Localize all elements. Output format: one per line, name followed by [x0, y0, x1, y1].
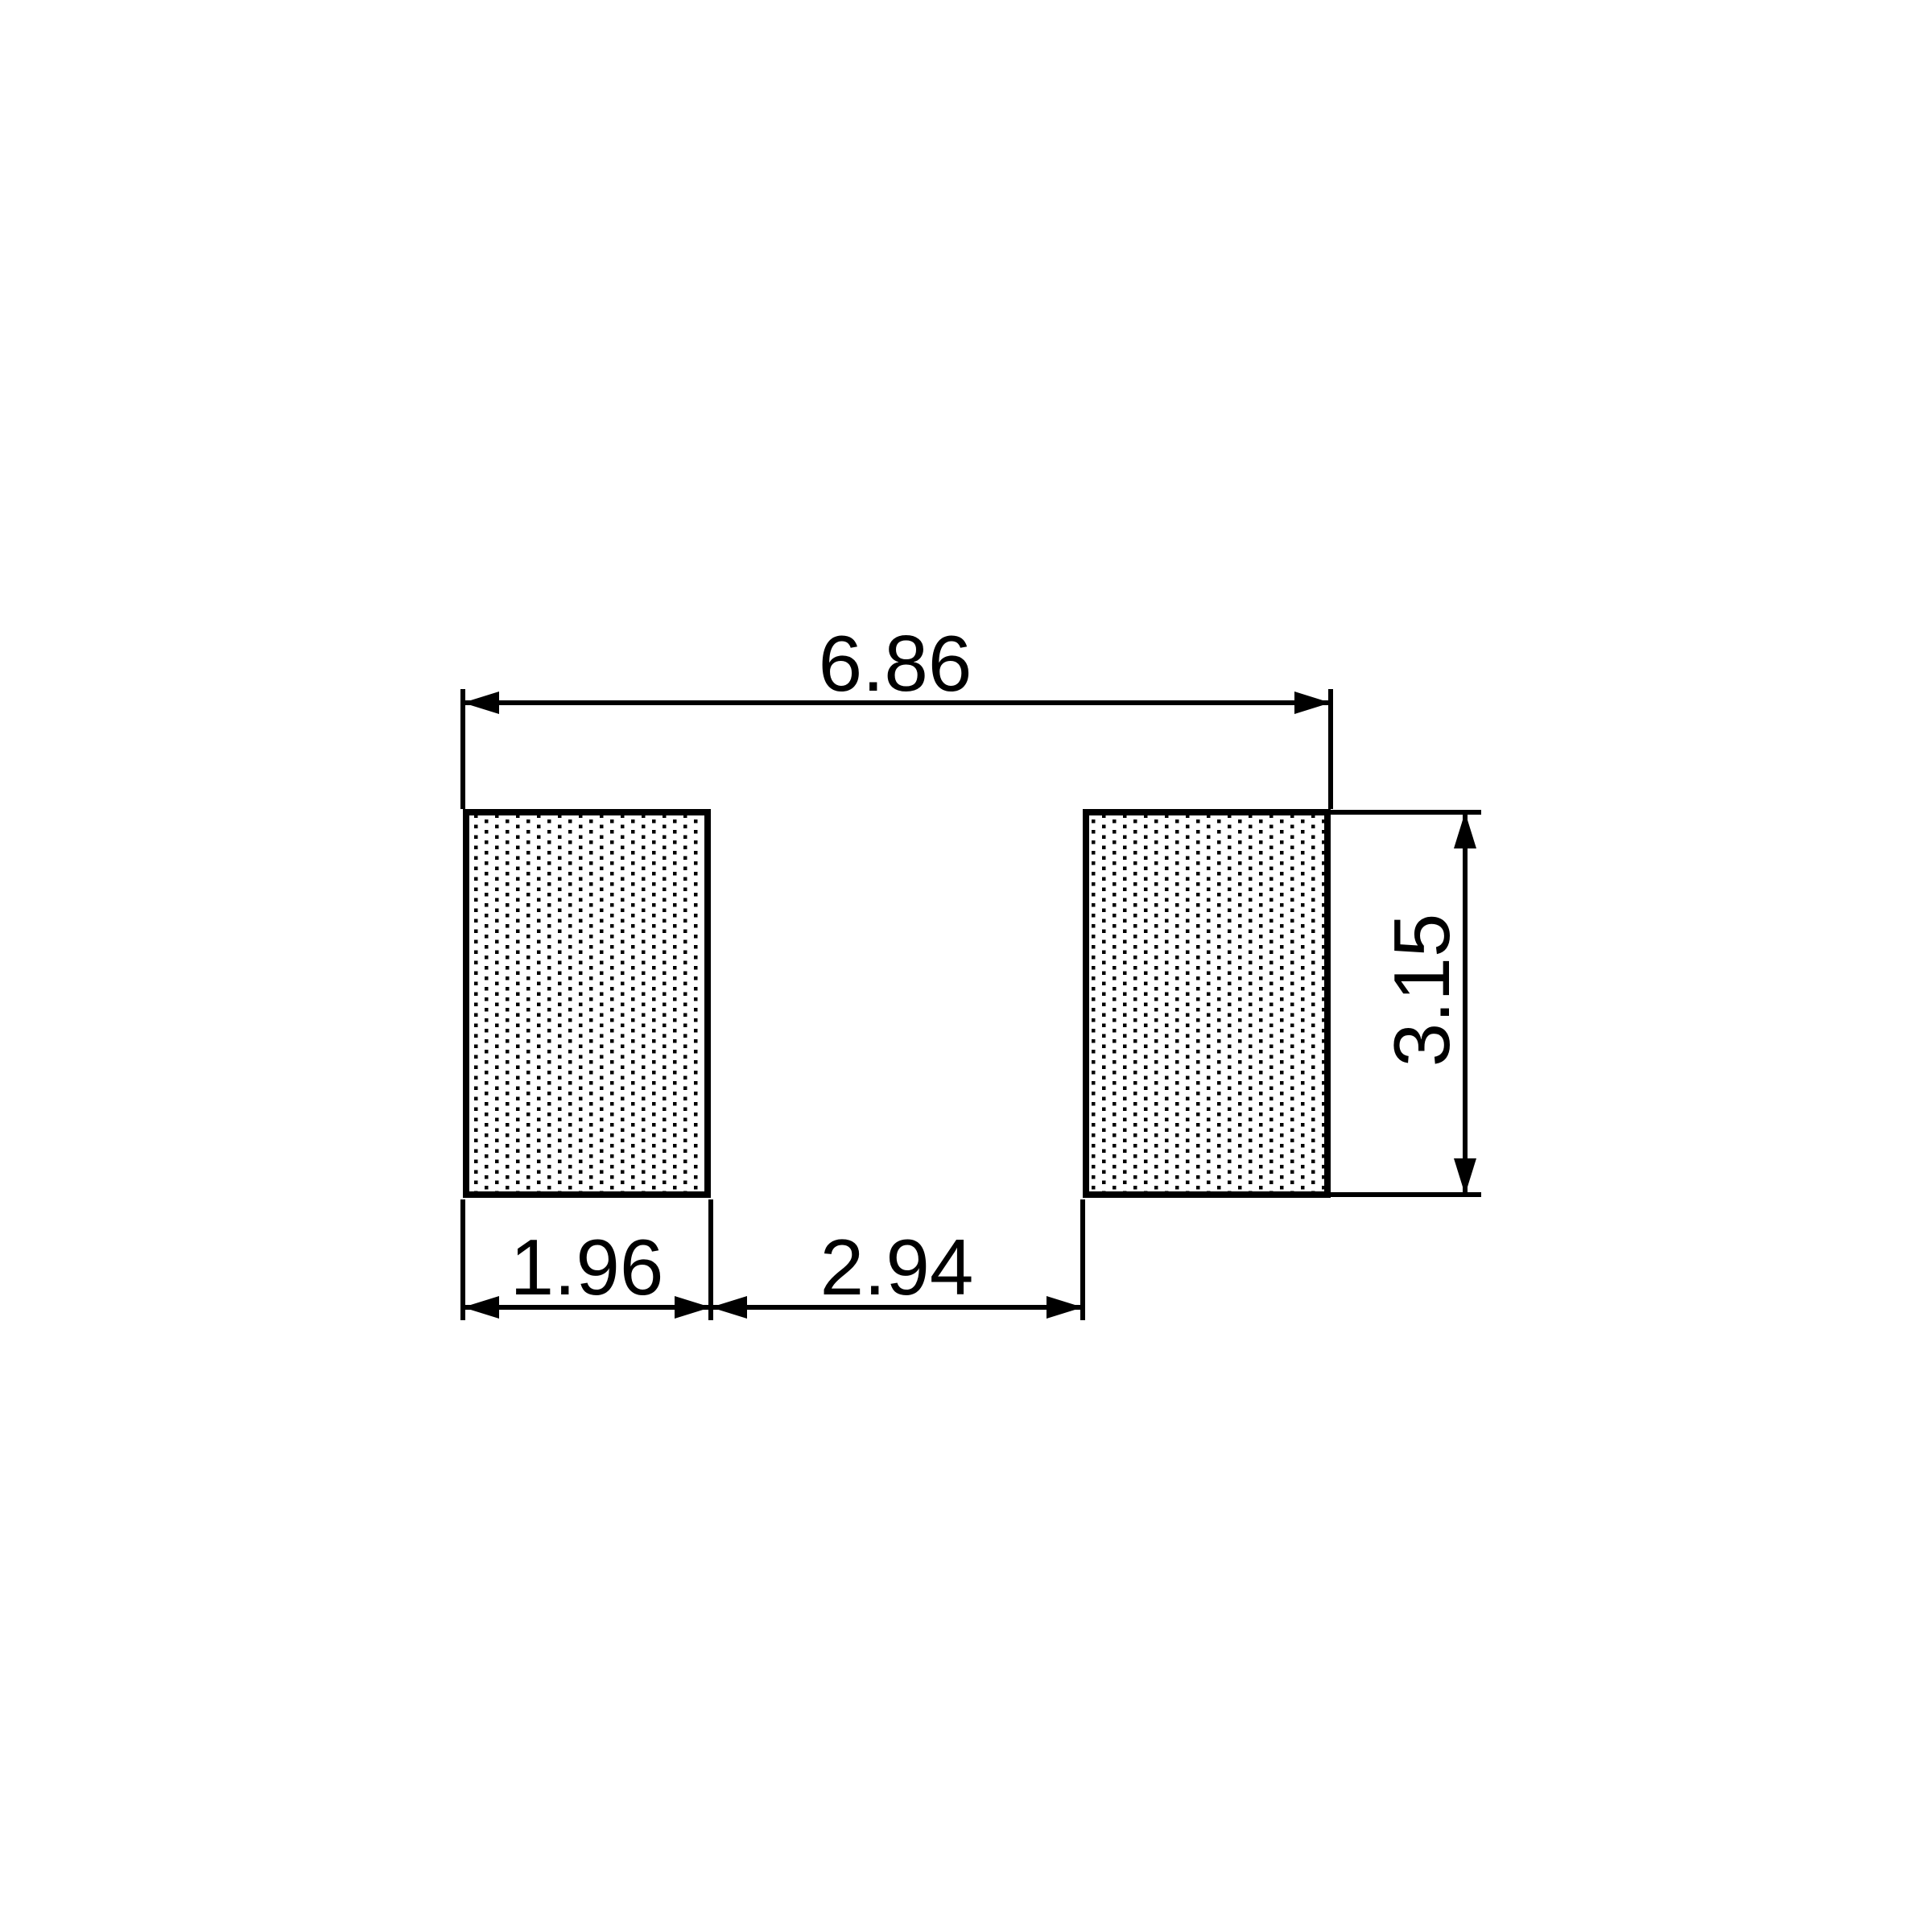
- dimension-label-pad-height: 3.15: [1377, 914, 1466, 1067]
- technical-drawing: 6.86 1.96 2.94 3.15: [0, 0, 1932, 1932]
- dimension-label-overall-width: 6.86: [819, 619, 972, 708]
- left-pad-rect: [466, 812, 708, 1195]
- canvas-background: [0, 0, 1932, 1932]
- right-pad-rect: [1086, 812, 1327, 1195]
- dimension-label-pad-gap: 2.94: [820, 1223, 974, 1311]
- dimension-label-pad-width: 1.96: [510, 1223, 664, 1311]
